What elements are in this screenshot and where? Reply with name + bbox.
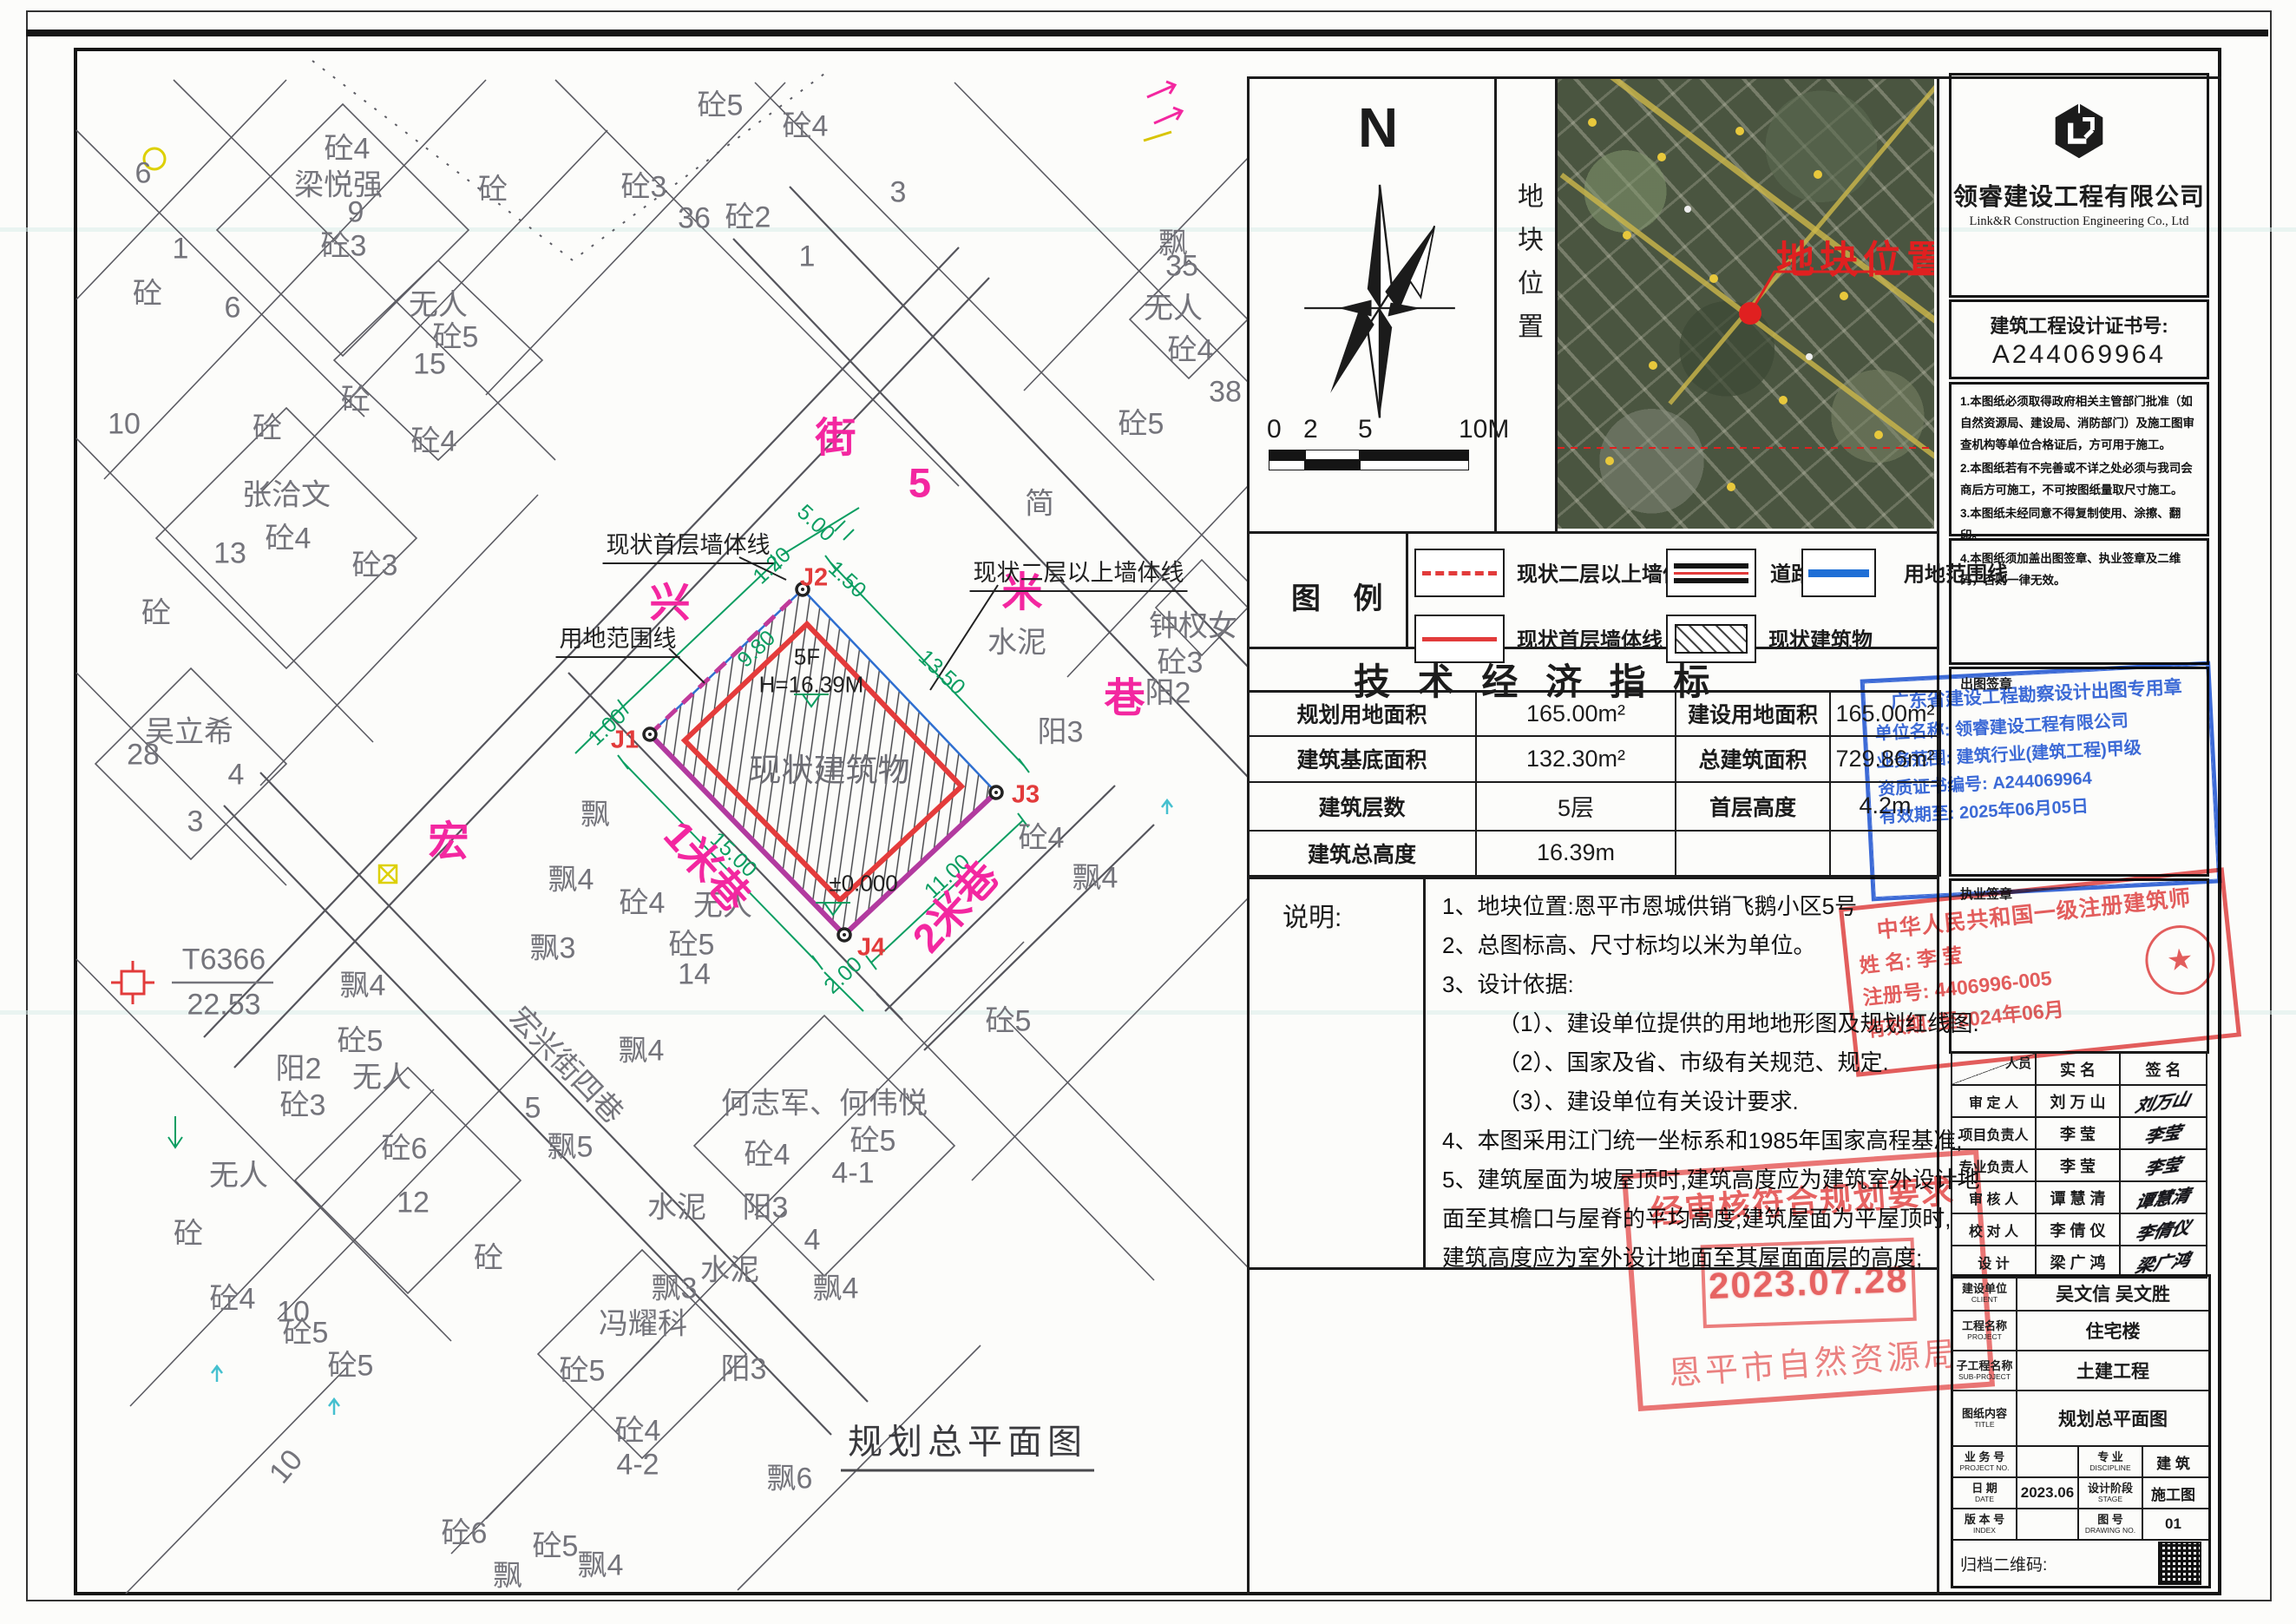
qr-code: [2158, 1542, 2201, 1585]
personnel-role: 审 核 人: [1952, 1181, 2036, 1213]
parcel-label: 28: [127, 739, 160, 773]
scalebar-tick-label: 2: [1303, 415, 1318, 444]
parcel-label: 砼5: [850, 1117, 896, 1160]
callout-label: 现状二层以上墙体线: [970, 554, 1188, 592]
parcel-label: 砼3: [621, 163, 667, 206]
project-row-value: 土建工程: [2017, 1351, 2208, 1390]
signature-scrawl: 刘万山: [2134, 1085, 2194, 1117]
indicator-value: 132.30m²: [1476, 736, 1676, 781]
company-note-line: 1.本图纸必须取得政府相关主管部门批准（如自然资源局、建设局、消防部门）及施工图…: [1960, 391, 2198, 457]
indicator-name: 建筑基底面积: [1248, 736, 1476, 781]
qr-label: 归档二维码:: [1960, 1552, 2047, 1575]
personnel-signature: 梁广鸿: [2120, 1246, 2207, 1278]
legend-item-label: 现状建筑物: [1768, 623, 1873, 654]
project-grid-value: [2017, 1447, 2079, 1476]
personnel-signature: 刘万山: [2120, 1085, 2207, 1117]
parcel-label: 飘3: [530, 924, 576, 967]
scalebar-segment: [1360, 460, 1469, 470]
indicator-name: 建筑层数: [1248, 782, 1476, 831]
site-location-label: 地块位置: [1776, 228, 1934, 284]
indicator-value: [1830, 831, 1940, 876]
parcel-label: 飘6: [767, 1455, 813, 1497]
parcel-label: 4: [228, 759, 245, 792]
project-title-block: 建设单位CLIENT吴文信 吴文胜工程名称PROJECT住宅楼子工程名称SUB-…: [1951, 1274, 2211, 1588]
parcel-label: 砼4: [210, 1275, 256, 1318]
parcel-label: 飘5: [548, 1123, 594, 1166]
signature-scrawl: 梁广鸿: [2134, 1246, 2194, 1278]
parcel-label: 飘4: [548, 856, 594, 898]
parcel-label: 砼4: [620, 879, 666, 922]
parcel-label: 飘4: [619, 1027, 665, 1069]
corner-point-label: J1: [611, 727, 639, 755]
parcel-label: 阳2: [1145, 669, 1191, 712]
parcel-label: 砼4: [783, 102, 829, 145]
project-row-label: 子工程名称SUB-PROJECT: [1953, 1351, 2017, 1390]
project-row-value: 住宅楼: [2017, 1312, 2208, 1350]
personnel-header: 实 名: [2036, 1053, 2120, 1085]
project-grid-value: 建 筑: [2143, 1447, 2203, 1476]
parcel-label: 砼: [341, 376, 371, 418]
parcel-label: 砼5: [533, 1522, 579, 1565]
indicator-name: 首层高度: [1676, 782, 1830, 831]
personnel-header: 人员: [1952, 1053, 2036, 1085]
indicator-name: 总建筑面积: [1676, 736, 1830, 781]
qr-row: 归档二维码:: [1953, 1541, 2208, 1586]
project-grid-label: 专 业DISCIPLINE: [2079, 1447, 2143, 1476]
location-strip-label: 地块位置: [1508, 182, 1546, 356]
personnel-header: 签 名: [2120, 1053, 2207, 1085]
personnel-signature: 李莹: [2120, 1117, 2207, 1149]
parcel-label: 砼5: [283, 1309, 329, 1351]
parcel-label: 无人: [209, 1152, 268, 1194]
sheet-top-rule: [26, 30, 2268, 36]
parcel-label: 14: [678, 958, 711, 992]
project-row: 建设单位CLIENT吴文信 吴文胜: [1953, 1277, 2208, 1312]
project-row-value: 吴文信 吴文胜: [2017, 1277, 2208, 1310]
personnel-role: 项目负责人: [1952, 1117, 2036, 1149]
parcel-label: 砼2: [725, 194, 771, 236]
parcel-label: 飘: [493, 1552, 522, 1594]
building-floors: 5F: [794, 644, 820, 671]
scalebar-tick-label: 5: [1358, 415, 1373, 444]
parcel-label: 砼5: [986, 997, 1032, 1040]
parcel-label: 砼4: [1019, 814, 1065, 857]
scalebar-segment: [1360, 450, 1469, 460]
parcel-label: 6: [225, 292, 241, 325]
parcel-label: 无人: [1144, 285, 1203, 327]
parcel-label: 飘: [581, 791, 610, 833]
project-grid-label: 版 本 号INDEX: [1953, 1509, 2017, 1539]
north-label: N: [1358, 95, 1398, 160]
parcel-label: 砼5: [560, 1347, 606, 1390]
parcel-label: 飘4: [813, 1265, 859, 1307]
project-grid-label: 图 号DRAWING NO.: [2079, 1509, 2143, 1539]
parcel-label: 1: [173, 233, 189, 266]
corner-point-label: J3: [1012, 781, 1040, 810]
scale-bar: 02510M: [1263, 415, 1497, 476]
project-row-label: 工程名称PROJECT: [1953, 1312, 2017, 1350]
parcel-label: 4: [804, 1224, 821, 1258]
personnel-signature: 李倩仪: [2120, 1213, 2207, 1246]
indicator-value: 16.39m: [1476, 831, 1676, 876]
parcel-label: 无人: [352, 1054, 411, 1096]
corner-point-label: J2: [800, 564, 828, 593]
personnel-name: 李 莹: [2036, 1149, 2120, 1181]
company-name-en: Link&R Construction Engineering Co., Ltd: [1952, 214, 2207, 229]
parcel-label: 砼5: [669, 921, 715, 963]
street-name-label: 5: [909, 459, 931, 507]
parcel-label: 36: [678, 202, 711, 236]
personnel-signature: 谭慧清: [2120, 1181, 2207, 1213]
compass-rose-icon: [1297, 178, 1462, 438]
project-row-label: 图纸内容TITLE: [1953, 1391, 2017, 1445]
project-grid-label: 业 务 号PROJECT NO.: [1953, 1447, 2017, 1476]
legend-item-label: 用地范围线: [1904, 557, 2008, 588]
street-name-label: 巷: [1105, 665, 1145, 725]
parcel-label: 12: [397, 1187, 430, 1220]
indicator-name: 建设用地面积: [1676, 691, 1830, 736]
personnel-role: 专业负责人: [1952, 1149, 2036, 1181]
parcel-label: 水泥: [647, 1184, 706, 1226]
parcel-label: 阳3: [743, 1184, 789, 1226]
parcel-label: 阳3: [721, 1345, 767, 1388]
company-note-line: 2.本图纸若有不完善或不详之处必须与我司会商后方可施工，不可按图纸量取尺寸施工。: [1960, 458, 2198, 502]
scalebar-segment: [1269, 460, 1305, 470]
signature-scrawl: 李莹: [2142, 1118, 2184, 1147]
parcel-label: 5: [525, 1092, 541, 1126]
drawing-sheet: 砼5砼4砼4梁悦强9砼3砼336砼23161砼610砼砼砼无人砼515砼4张洽文…: [0, 0, 2296, 1624]
parcel-label: 4-2: [616, 1449, 659, 1483]
siteplan-title: 规划总平面图: [841, 1414, 1094, 1472]
parcel-label: 水泥: [987, 619, 1046, 661]
parcel-label: 15: [413, 348, 446, 382]
parcel-label: 阳3: [1038, 708, 1084, 751]
project-grid-label: 设计阶段STAGE: [2079, 1478, 2143, 1508]
indicator-value: 165.00m²: [1830, 691, 1940, 736]
planning-stamp-date: 2023.07.28: [1708, 1259, 1909, 1307]
indicator-value: 4.2m: [1830, 782, 1940, 831]
scalebar-tick-label: 0: [1267, 415, 1282, 444]
personnel-name: 李 莹: [2036, 1117, 2120, 1149]
building-name: 现状建筑物: [750, 744, 910, 791]
parcel-label: 简: [1025, 480, 1054, 523]
company-logo-box: 领睿建设工程有限公司 Link&R Construction Engineeri…: [1949, 73, 2209, 298]
project-grid-row: 业 务 号PROJECT NO.专 业DISCIPLINE建 筑: [1953, 1447, 2208, 1478]
note-line: 1、地块位置:恩平市恩城供销飞鹅小区5号: [1442, 887, 1980, 926]
parcel-label: 砼: [478, 166, 508, 208]
parcel-label: 砼6: [382, 1125, 428, 1167]
cert-number: A244069964: [1952, 340, 2207, 370]
building-height: H=16.39M: [759, 672, 864, 699]
project-grid-value: 01: [2143, 1509, 2203, 1539]
parcel-label: 砼: [253, 404, 282, 447]
planning-approval-stamp: 经审核符合规划要求 2023.07.28 恩平市自然资源局: [1622, 1149, 1995, 1411]
indicator-value: 165.00m²: [1476, 691, 1676, 736]
planning-stamp-org: 恩平市自然资源局: [1639, 1325, 1989, 1397]
project-grid-row: 版 本 号INDEX图 号DRAWING NO.01: [1953, 1509, 2208, 1541]
project-row-label: 建设单位CLIENT: [1953, 1277, 2017, 1310]
scalebar-tick-label: 10M: [1459, 415, 1509, 444]
cert-label: 建筑工程设计证书号:: [1952, 311, 2207, 339]
legend-swatch-blue: [1801, 549, 1876, 597]
parcel-label: 22.53: [187, 989, 260, 1022]
parcel-label: 砼3: [280, 1082, 326, 1124]
siteplan-drawing: [74, 48, 1250, 1597]
satellite-overlay: [1558, 79, 1934, 529]
parcel-label: 砼: [474, 1234, 503, 1277]
parcel-label: 冯耀科: [599, 1300, 687, 1343]
parcel-label: 飘4: [578, 1542, 624, 1584]
project-grid-value: 2023.06: [2017, 1478, 2079, 1508]
parcel-label: 1: [799, 240, 816, 274]
parcel-label: 水泥: [700, 1246, 759, 1289]
parcel-label: 35: [1165, 250, 1198, 284]
note-line: 2、总图标高、尺寸标均以米为单位。: [1442, 926, 1980, 965]
personnel-role: 校 对 人: [1952, 1213, 2036, 1246]
parcel-label: 砼: [133, 270, 162, 312]
parcel-label: 砼3: [352, 542, 398, 584]
personnel-name: 刘 万 山: [2036, 1085, 2120, 1117]
indicator-name: 建筑总高度: [1248, 831, 1476, 876]
parcel-label: 10: [108, 408, 141, 442]
parcel-label: 砼3: [321, 222, 367, 265]
parcel-label: T6366: [182, 943, 266, 977]
parcel-label: 3: [187, 805, 204, 839]
project-row: 图纸内容TITLE规划总平面图: [1953, 1391, 2208, 1447]
building-level: ±0.000: [829, 871, 897, 897]
planning-stamp-text: 经审核符合规划要求: [1628, 1163, 1978, 1234]
parcel-label: 砼: [174, 1210, 203, 1253]
company-notes-box: 1.本图纸必须取得政府相关主管部门批准（如自然资源局、建设局、消防部门）及施工图…: [1949, 382, 2209, 536]
personnel-name: 李 倩 仪: [2036, 1213, 2120, 1246]
parcel-label: 砼5: [1118, 400, 1164, 443]
personnel-signature: 李莹: [2120, 1149, 2207, 1181]
project-grid-label: 日 期DATE: [1953, 1478, 2017, 1508]
legend-item-label: 现状首层墙体线: [1517, 623, 1663, 654]
legend-swatch-road: [1666, 549, 1756, 597]
parcel-label: 3: [890, 176, 907, 210]
scalebar-segment: [1269, 450, 1305, 460]
parcel-label: 砼: [141, 589, 171, 632]
company-name: 领睿建设工程有限公司: [1952, 178, 2207, 213]
planning-stamp-date-box: 2023.07.28: [1701, 1238, 1917, 1329]
project-row-value: 规划总平面图: [2017, 1391, 2208, 1445]
street-name-label: 街: [816, 404, 856, 464]
parcel-label: 张洽文: [242, 471, 331, 514]
corner-point-label: J4: [857, 934, 885, 963]
parcel-label: 砼4: [266, 515, 312, 557]
note-line: （3）、建设单位有关设计要求.: [1442, 1082, 1980, 1121]
project-grid-value: 施工图: [2143, 1478, 2203, 1508]
callout-label: 现状首层墙体线: [603, 526, 774, 564]
scalebar-segment: [1305, 450, 1360, 460]
parcel-label: 砼4: [615, 1407, 661, 1450]
parcel-label: 飘4: [1073, 854, 1118, 897]
notes-label: 说明:: [1282, 896, 1342, 934]
parcel-label: 砼4: [1168, 326, 1214, 369]
parcel-label: 砼5: [698, 82, 744, 124]
project-grid-value: [2017, 1509, 2079, 1539]
note-line: （2）、国家及省、市级有关规范、规定.: [1442, 1043, 1980, 1082]
cert-box: 建筑工程设计证书号: A244069964: [1949, 299, 2209, 379]
site-location-dot: [1739, 302, 1761, 325]
project-row: 子工程名称SUB-PROJECT土建工程: [1953, 1351, 2208, 1391]
note-line: 3、设计依据:: [1442, 965, 1980, 1004]
note-line: （1）、建设单位提供的用地地形图及规划红线图.: [1442, 1004, 1980, 1043]
indicator-value: 5层: [1476, 782, 1676, 831]
parcel-label: 4-1: [831, 1157, 874, 1191]
parcel-label: 砼5: [328, 1342, 374, 1384]
indicator-value: 729.86m²: [1830, 736, 1940, 781]
parcel-label: 6: [135, 157, 152, 191]
parcel-label: 飘4: [340, 962, 386, 1004]
personnel-role: 审 定 人: [1952, 1085, 2036, 1117]
personnel-table: 人员实 名签 名审 定 人刘 万 山刘万山项目负责人李 莹李莹专业负责人李 莹李…: [1951, 1052, 2207, 1279]
signature-scrawl: 谭慧清: [2134, 1181, 2194, 1213]
satellite-map: 地块位置: [1558, 79, 1934, 529]
indicator-name: [1676, 831, 1830, 876]
parcel-label: 砼6: [442, 1509, 488, 1552]
company-logo-icon: [2049, 100, 2109, 161]
project-row: 工程名称PROJECT住宅楼: [1953, 1312, 2208, 1351]
parcel-label: 何志军、何伟悦: [721, 1080, 928, 1122]
legend-swatch-dash-red: [1414, 549, 1505, 597]
signature-scrawl: 李倩仪: [2134, 1213, 2194, 1246]
legend-title: 图 例: [1291, 575, 1394, 617]
callout-label: 用地范围线: [556, 620, 680, 658]
parcel-label: 砼4: [411, 418, 457, 460]
personnel-name: 谭 慧 清: [2036, 1181, 2120, 1213]
parcel-label: 梁悦强: [294, 161, 383, 204]
indicators-table: 规划用地面积165.00m²建设用地面积165.00m²建筑基底面积132.30…: [1247, 690, 1941, 877]
scalebar-segment: [1305, 460, 1360, 470]
parcel-label: 38: [1209, 376, 1242, 410]
parcel-label: 13: [213, 537, 246, 571]
parcel-label: 砼4: [745, 1131, 790, 1174]
street-name-label: 宏: [429, 808, 469, 868]
signature-scrawl: 李莹: [2142, 1150, 2184, 1180]
personnel-role: 设 计: [1952, 1246, 2036, 1278]
indicator-name: 规划用地面积: [1248, 691, 1476, 736]
project-grid-row: 日 期DATE2023.06设计阶段STAGE施工图: [1953, 1478, 2208, 1509]
personnel-name: 梁 广 鸿: [2036, 1246, 2120, 1278]
